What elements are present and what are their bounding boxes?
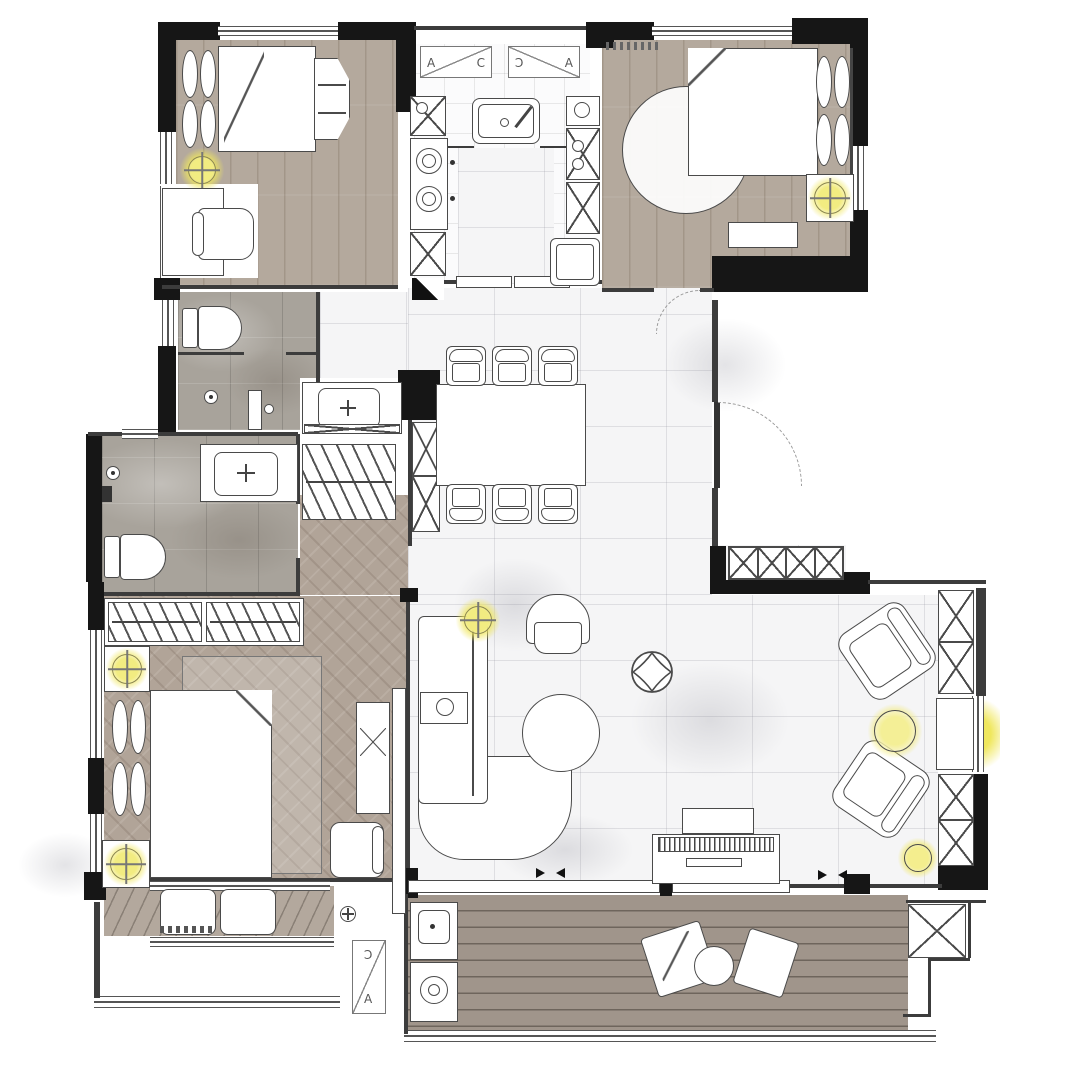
dining-chair [446,346,486,386]
wall [844,874,870,894]
wall [906,900,986,903]
armchair [526,594,590,658]
window-tag-letter: A [565,57,573,69]
door-swing-arrow [536,868,545,878]
bookcase [938,642,974,694]
chair-back [449,508,483,521]
kitchen-sliding-door [456,276,512,288]
bath1-door-leaf [248,390,262,430]
wall [600,22,654,40]
curtain-icon [606,42,658,50]
fridge-inner [556,244,594,280]
counter-edge [540,146,568,148]
balcony-sliding-door [408,880,660,893]
burner-inner [422,154,436,168]
wall [88,432,298,436]
floor-drain-dot [111,471,115,475]
wall [726,580,846,594]
chair-back [541,508,575,521]
chair-seat [544,363,572,382]
shower-partition [178,352,244,355]
balcony-small-window [150,937,334,947]
wall [158,22,176,132]
wall [296,558,300,596]
window [162,300,174,346]
wall [404,894,408,1034]
wall [86,434,102,582]
balcony-mat [220,889,276,935]
window-tag-letter: C [364,949,372,961]
wall [792,18,868,44]
door-swing-arrow [556,868,565,878]
pillow [112,762,128,816]
window [160,132,172,184]
balcony-table [694,946,734,986]
blanket-fold [236,690,272,726]
chair-seat [544,488,572,507]
window-seat [936,698,974,770]
pillow [834,114,850,166]
wall [400,588,418,602]
wardrobe-rail [108,602,202,642]
pillow [834,56,850,108]
sofa-seat-line [472,624,474,796]
ac-platform [908,904,966,958]
tv-icon [360,728,386,756]
window-tag-kitchen-left: A C [420,46,492,78]
floor-hall-nook [320,292,408,380]
pillow [182,100,198,148]
piano-keys [658,837,774,852]
wall [968,902,971,958]
dining-table [436,384,586,486]
tv-wall-panel [392,688,406,914]
wall [700,288,714,292]
kitchen-tall-cabinet [566,128,600,180]
counter-edge [444,146,474,148]
wall [868,580,986,584]
sink-drain-dot [430,924,435,929]
chair-seat [498,363,526,382]
toilet-tank [104,536,120,578]
armchair-seat [534,622,582,654]
pillow [130,700,146,754]
pillow [200,50,216,98]
wall [712,256,868,292]
wall [158,346,176,434]
wall [162,285,398,289]
closet-hanging-rail [302,444,396,520]
window [90,630,102,758]
fan-side-table [630,650,674,694]
footboard-slat [318,84,346,86]
window [218,26,340,36]
piano-lid-line [686,858,742,867]
headboard [850,48,853,176]
wall [710,546,726,594]
window-tag-letter: C [515,57,523,69]
chair-back [449,349,483,362]
desk-chair-back [192,212,204,256]
toilet-bowl [120,534,166,580]
pillow [130,762,146,816]
balcony-rail [404,1030,936,1042]
wardrobe-rail [206,602,300,642]
wall [928,958,931,1016]
shower-partition [286,352,316,355]
tv-cabinet [356,702,390,814]
cabinet-knob [416,102,428,114]
bedroom-chair-back [372,826,384,874]
kitchen-cabinet [410,96,446,136]
dining-chair [538,346,578,386]
vanity-apron [304,424,400,434]
wall [104,592,300,596]
window-tag-letter: C [477,57,485,69]
wall [94,902,100,998]
floor-plan: A C C A [0,0,1080,1080]
shoe-cabinet-door [729,547,758,579]
hob-ring [572,140,584,152]
hob-ring [572,158,584,170]
wall [338,22,398,40]
shower-valve [102,486,112,502]
window-tag-letter: A [364,993,372,1005]
desk-chair [198,208,254,260]
dining-chair [492,484,532,524]
dining-chair [538,484,578,524]
nook-round-table [874,710,916,752]
wall [406,596,410,872]
shoe-cabinet [728,546,844,580]
wall [154,278,180,300]
pillow [200,100,216,148]
floor-balcony-small [104,886,334,936]
wall [903,1014,931,1017]
wall [602,288,654,292]
door-swing-arrow [818,870,827,880]
balcony-small-rail [94,996,340,1008]
toilet-tank [182,308,198,348]
bookcase [938,774,974,820]
window [122,429,158,439]
door-swing-arrow [838,870,847,880]
dining-chair [446,484,486,524]
floor-drain-dot [209,395,213,399]
chair-seat [452,363,480,382]
kitchen-tall-cabinet [566,182,600,234]
light-fixture-icon [814,182,846,214]
wall [976,588,986,696]
door-knob [264,404,274,414]
wall [930,958,970,961]
light-fixture-icon [188,156,216,184]
wardrobe-rod [210,621,297,623]
window [652,26,794,36]
light-fixture-icon [112,654,142,684]
chair-seat [452,488,480,507]
shoe-cabinet-door [786,547,815,579]
window [90,814,102,872]
wall [88,582,104,630]
burner-knob [450,160,455,165]
light-fixture-icon [464,606,492,634]
burner-knob [450,196,455,201]
window-tag-balcony: C A [352,940,386,1014]
pillow [182,50,198,98]
floor-kitchen-runner [458,148,554,284]
kitchen-cabinet [410,232,446,276]
bookcase [938,820,974,866]
window-tag-letter: A [427,57,435,69]
wall [938,866,988,890]
dining-chair [492,346,532,386]
floor-lamp [904,844,932,872]
wall [88,758,104,814]
bench [728,222,798,248]
wall-column [398,370,440,420]
pillow [816,114,832,166]
floor-drain-cross [342,913,354,915]
footboard-slat [318,112,346,114]
chair-back [495,508,529,521]
kitchen-corner-unit [412,278,444,300]
side-table-dish [436,698,454,716]
wall [974,774,988,868]
blanket-fold [224,50,264,148]
blanket-fold [688,48,726,86]
chair-seat [498,488,526,507]
faucet-icon [340,407,356,409]
burner-inner [422,192,436,206]
toilet-bowl [198,306,242,350]
cabinet-knob [574,102,590,118]
chair-back [541,349,575,362]
wall [414,26,590,30]
closet-rod [306,481,393,483]
piano-bench [682,808,754,834]
pillow [816,56,832,108]
shoe-cabinet-door [758,547,787,579]
shoe-cabinet-door [815,547,844,579]
window-tag-kitchen-right: C A [508,46,580,78]
mat-fringe [160,926,216,933]
wall [842,572,870,594]
faucet-icon [237,472,255,474]
wall [712,488,718,546]
washer-door-inner [428,984,440,996]
bookcase [938,590,974,642]
chair-back [495,349,529,362]
light-fixture-icon [110,848,142,880]
pillow [112,700,128,754]
wardrobe-rod [112,621,199,623]
coffee-table [522,694,600,772]
sink-drain [500,118,509,127]
wall [712,300,718,402]
